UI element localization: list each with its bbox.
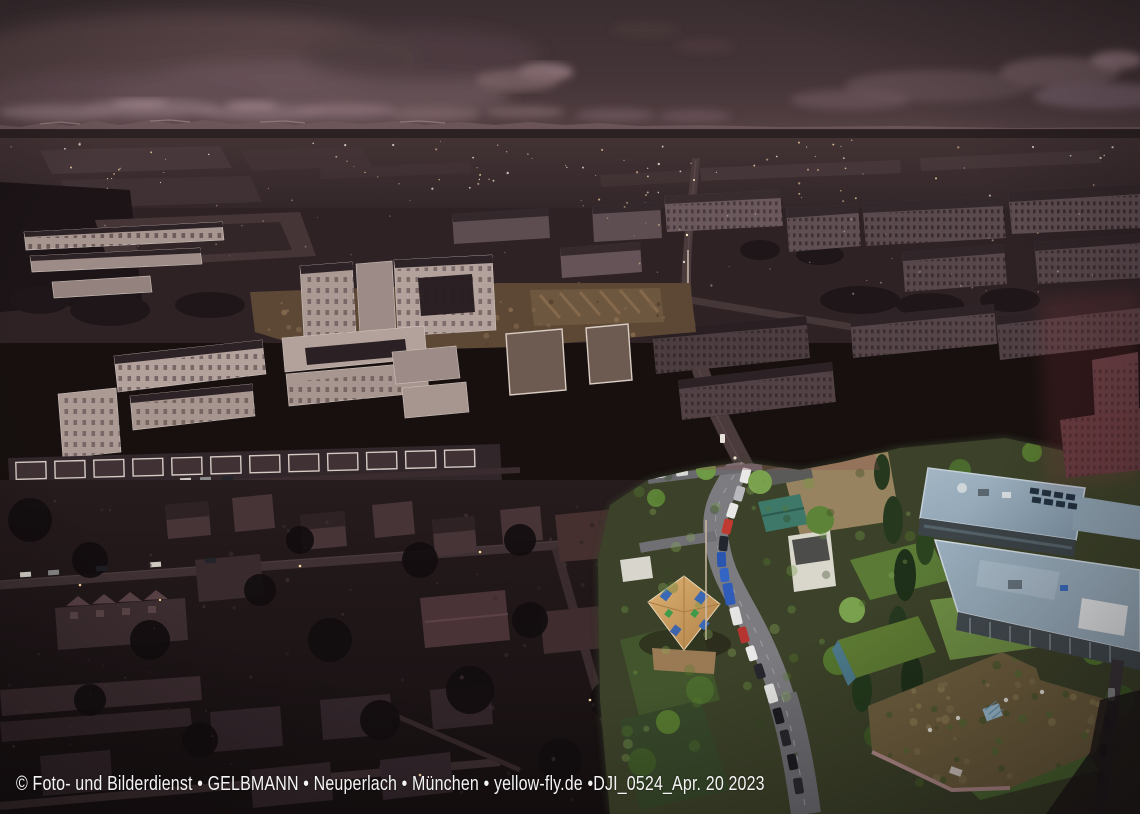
vignette [0, 0, 1140, 814]
watermark-caption: © Foto- und Bilderdienst • GELBMANN • Ne… [16, 772, 765, 796]
aerial-photo: © Foto- und Bilderdienst • GELBMANN • Ne… [0, 0, 1140, 814]
photo-canvas [0, 0, 1140, 814]
